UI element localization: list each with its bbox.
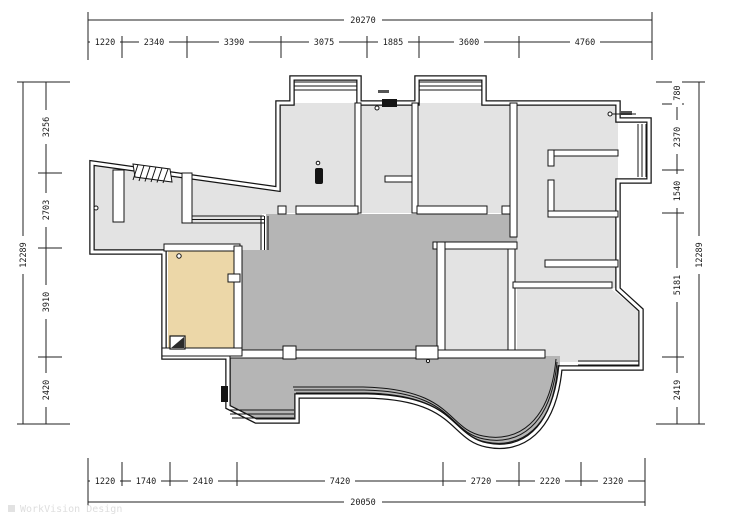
dim-top-seg-4: 1885 [383,38,403,48]
dim-bottom-seg-4: 2720 [471,477,491,487]
dim-right-seg-4: 2419 [673,380,683,400]
dim-right-seg-2: 1540 [673,181,683,201]
dim-left-seg-1: 2703 [42,200,52,220]
dim-left-seg-2: 3910 [42,292,52,312]
dim-bottom-seg-3: 7420 [330,477,350,487]
dim-right-seg-0: 780 [673,85,683,100]
dim-bottom-seg-2: 2410 [193,477,213,487]
dimension-left: 12289 3256 2703 3910 2420 [17,82,70,424]
dimension-bottom: 20050 1220 1740 2410 7420 2720 2220 2320 [88,458,645,508]
equipment-tag-top [378,90,389,93]
marker-dot-kitchen [177,254,181,258]
hall-top [361,103,412,213]
dimension-right: 12289 780 2370 1540 5181 2419 [656,79,705,424]
dim-top-seg-2: 3390 [224,38,244,48]
dim-top-seg-0: 1220 [95,38,115,48]
living-area-2 [266,214,437,252]
room-top-right [513,103,618,260]
floorplan-canvas: 20270 1220 2340 3390 3075 1885 3600 4760… [0,0,729,530]
dim-left-seg-3: 2420 [42,380,52,400]
room-bottom-center [445,249,508,352]
dim-top-seg-6: 4760 [575,38,595,48]
floorplan-drawing: 20270 1220 2340 3390 3075 1885 3600 4760… [0,0,729,530]
marker-dot-entry [316,161,320,165]
door-leaf-entry [315,168,323,184]
balcony-terrace [228,356,560,446]
dim-right-total: 12289 [695,242,705,268]
corridor [437,214,517,244]
watermark-logo-icon [8,505,15,512]
dim-bottom-seg-6: 2320 [603,477,623,487]
dim-top-seg-3: 3075 [314,38,334,48]
dim-top-seg-1: 2340 [144,38,164,48]
room-kitchen [168,251,234,350]
dim-left-seg-0: 3256 [42,117,52,137]
dim-top-seg-5: 3600 [459,38,479,48]
dim-bottom-total: 20050 [350,498,376,508]
dim-right-seg-1: 2370 [673,127,683,147]
dim-top-total: 20270 [350,16,376,26]
dim-bottom-seg-1: 1740 [136,477,156,487]
dim-bottom-seg-0: 1220 [95,477,115,487]
marker-dot-balcony [426,359,429,362]
watermark: WorkVision Design [8,504,122,515]
dim-right-seg-3: 5181 [673,275,683,295]
marker-dot-leftwall [94,206,98,210]
door-leaf-bottom [221,386,228,402]
watermark-text: WorkVision Design [20,504,122,515]
room-bedroom-1 [278,103,355,213]
living-area-1 [242,250,437,352]
dim-left-total: 12289 [19,242,29,268]
room-bedroom-2 [418,103,510,213]
marker-dot-top [375,106,379,110]
equipment-marker-top [382,99,397,107]
dimension-top: 20270 1220 2340 3390 3075 1885 3600 4760 [88,12,652,60]
dim-bottom-seg-5: 2220 [540,477,560,487]
marker-dot-topright [608,112,612,116]
